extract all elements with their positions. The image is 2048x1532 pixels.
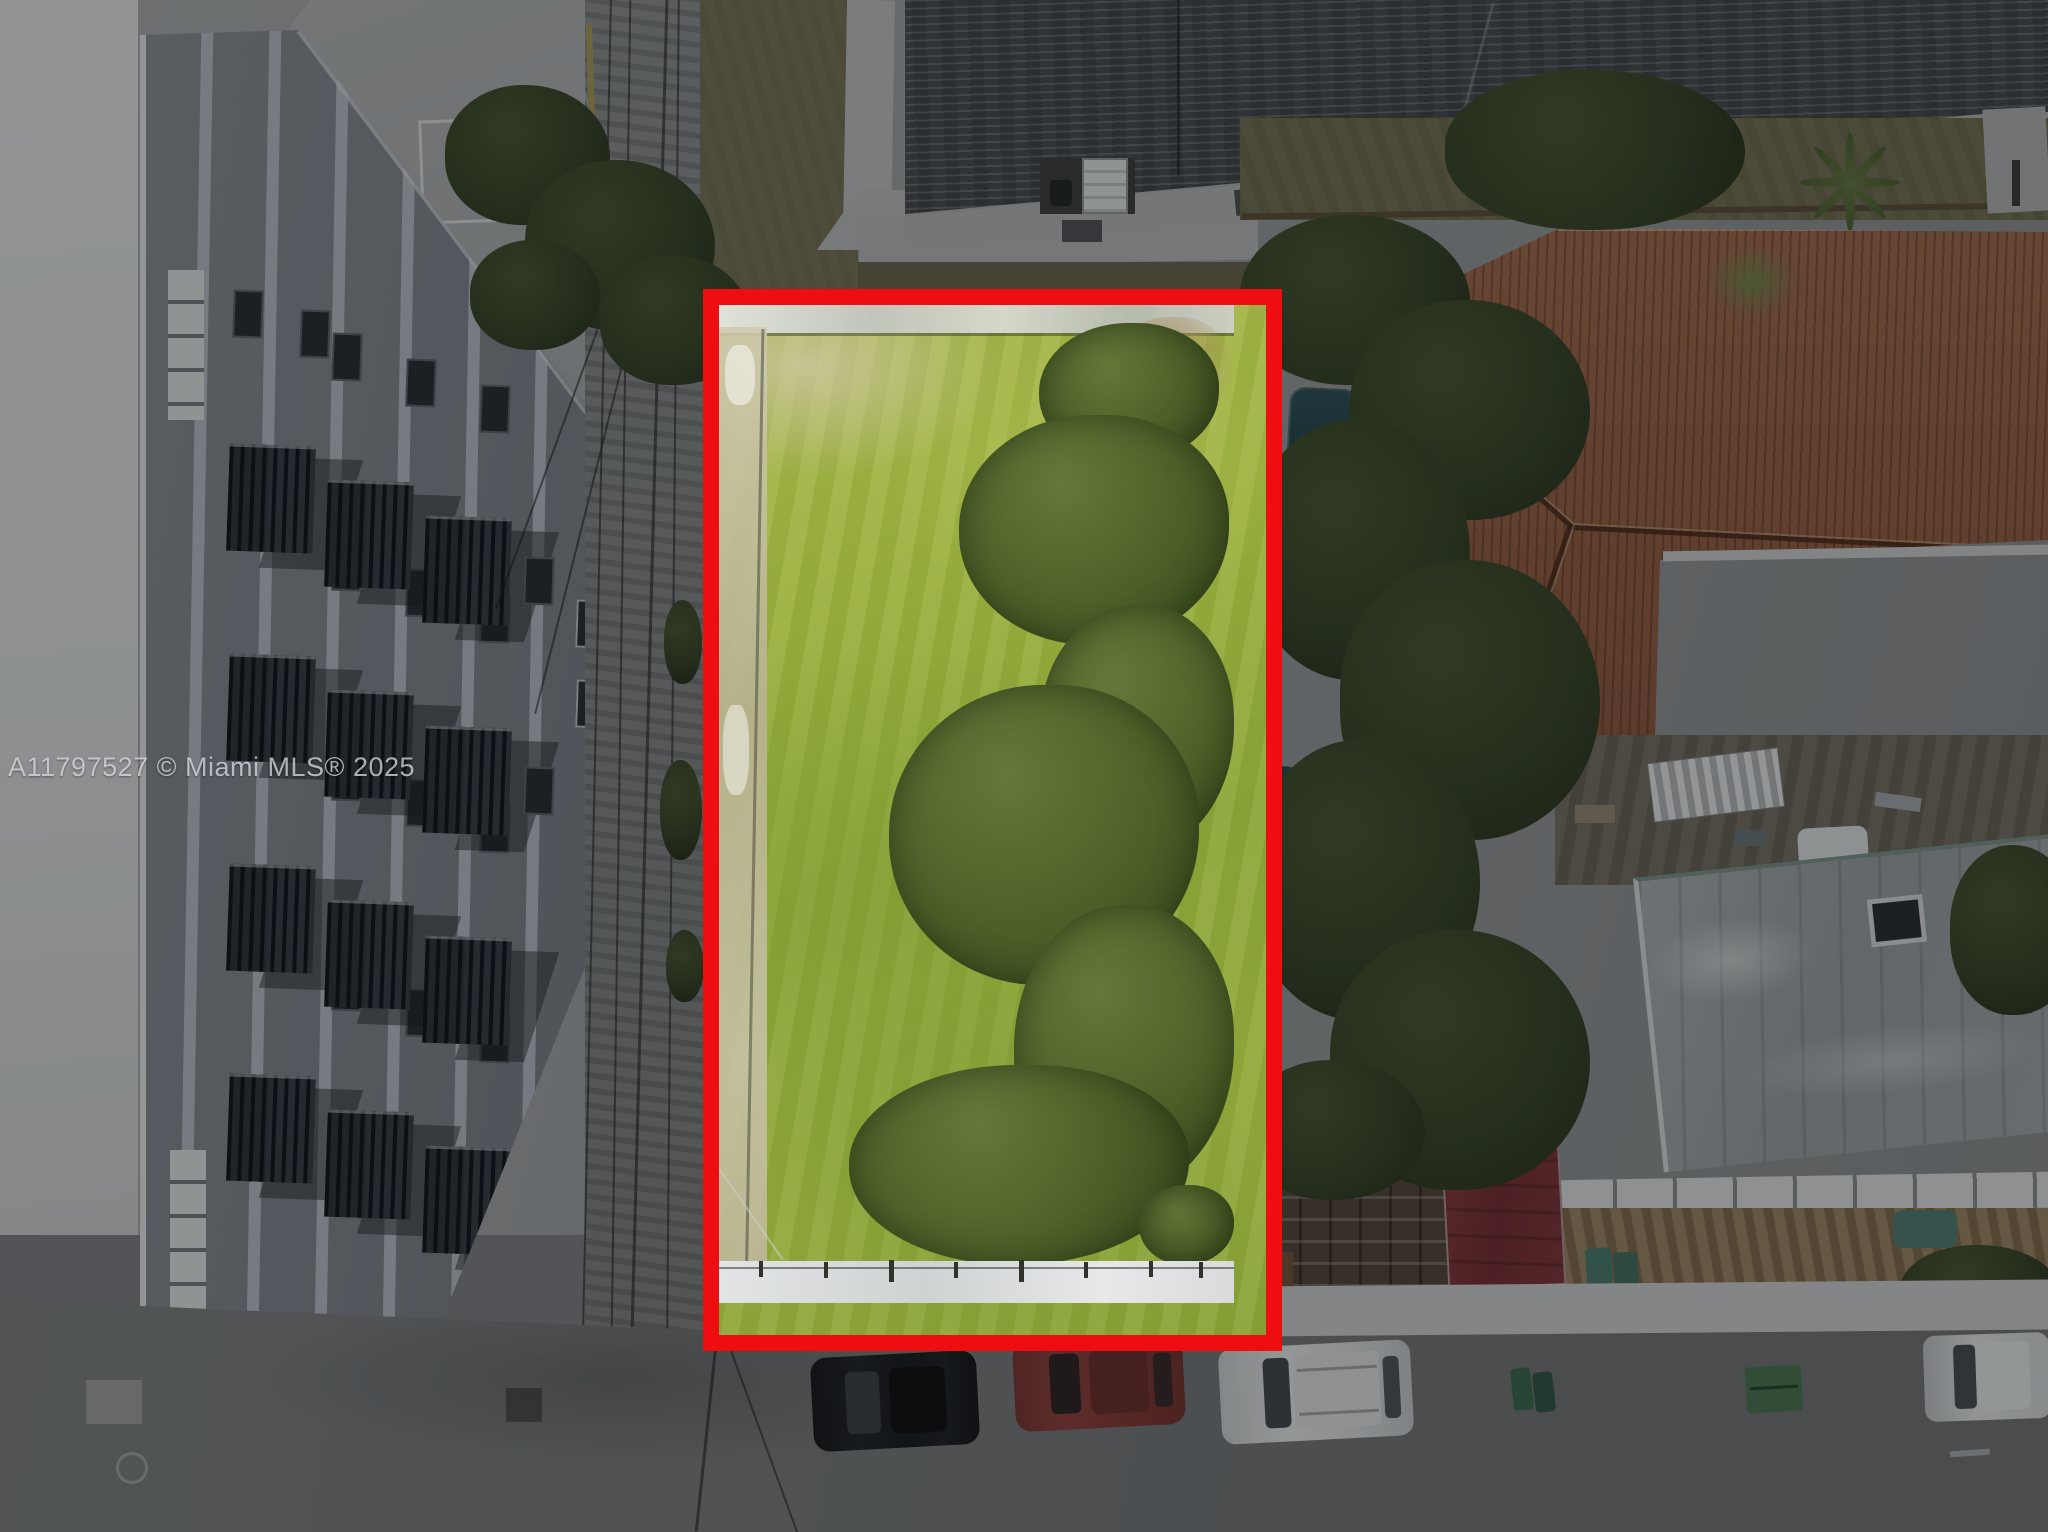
window xyxy=(299,309,331,358)
car-roof xyxy=(1088,1347,1149,1414)
car-roof xyxy=(888,1365,947,1434)
window xyxy=(523,766,555,815)
car-rear-glass xyxy=(1153,1352,1174,1407)
porch-sign xyxy=(1082,158,1128,214)
green-bin xyxy=(1613,1251,1639,1287)
debris xyxy=(1575,805,1615,823)
car-windshield xyxy=(844,1371,881,1435)
tree-canopy xyxy=(470,240,600,350)
balcony xyxy=(422,516,512,626)
vacant-lot-boundary xyxy=(703,289,1282,1351)
window xyxy=(331,332,363,381)
left-light-strip xyxy=(0,0,138,1250)
green-bin xyxy=(1585,1247,1613,1285)
green-dumpster xyxy=(1745,1365,1803,1414)
sidewalk-front xyxy=(1250,1280,2048,1337)
dirt-white-patch xyxy=(723,705,749,795)
window xyxy=(232,289,264,338)
white-trim xyxy=(170,1150,206,1310)
palm-over-roof xyxy=(1688,232,1818,332)
debris xyxy=(1735,830,1765,846)
black-car xyxy=(810,1350,981,1453)
street-patch-light xyxy=(86,1380,142,1424)
white-suv xyxy=(1218,1339,1415,1445)
fence-wire-line xyxy=(719,1267,1234,1269)
porch-chair xyxy=(1050,180,1072,206)
lot-tree xyxy=(959,415,1229,645)
fence-post xyxy=(954,1262,958,1278)
dirt-white-patch xyxy=(725,345,755,405)
bush xyxy=(660,760,702,860)
roof-seam xyxy=(1177,0,1180,175)
bush xyxy=(666,930,704,1002)
dumpster-lid-line xyxy=(1750,1385,1798,1391)
suv-roof xyxy=(1292,1351,1382,1429)
fence-post xyxy=(824,1262,828,1278)
lot-tree xyxy=(1139,1185,1234,1265)
white-trim xyxy=(168,270,204,420)
balcony xyxy=(324,1110,414,1220)
facade-stripe xyxy=(179,25,214,1335)
balcony xyxy=(226,444,316,554)
balcony xyxy=(324,900,414,1010)
fence-post xyxy=(759,1261,763,1277)
debris xyxy=(1874,792,1922,812)
scrub-strip xyxy=(858,262,1258,292)
window xyxy=(405,358,437,407)
white-suv-right xyxy=(1923,1332,2048,1422)
suv-rear-glass xyxy=(1382,1356,1401,1419)
manhole xyxy=(116,1452,148,1484)
tree-canopy xyxy=(1445,70,1745,230)
car-windshield xyxy=(1048,1353,1081,1414)
green-bin xyxy=(1510,1367,1534,1411)
balcony xyxy=(324,480,414,590)
balcony xyxy=(226,654,316,764)
aerial-photo-scene: A11797527 © Miami MLS® 2025 xyxy=(0,0,2048,1532)
fence-post xyxy=(889,1260,894,1282)
suv-windshield xyxy=(1953,1344,1977,1409)
lot-tree xyxy=(849,1065,1189,1265)
watermark: A11797527 © Miami MLS® 2025 xyxy=(8,752,415,783)
window xyxy=(523,556,555,605)
doormat xyxy=(1062,220,1102,242)
fence-post xyxy=(1149,1261,1153,1277)
balcony xyxy=(422,726,512,836)
dark-post xyxy=(2012,160,2020,206)
fence-post xyxy=(1019,1260,1024,1282)
green-bin xyxy=(1532,1371,1556,1413)
street-patch xyxy=(506,1388,542,1422)
window xyxy=(479,384,511,433)
bush xyxy=(664,600,702,684)
roof-vent xyxy=(1867,894,1928,948)
palm-tree xyxy=(1790,128,1910,238)
suv-windshield xyxy=(1262,1357,1292,1428)
balcony xyxy=(422,936,512,1046)
suv-roof xyxy=(1977,1341,2031,1411)
corrugated-metal-roof xyxy=(1647,747,1785,823)
balcony xyxy=(226,1074,316,1184)
fence-post xyxy=(1084,1262,1088,1278)
water-tank xyxy=(1893,1210,1957,1248)
balcony xyxy=(226,864,316,974)
fence-post xyxy=(1199,1262,1203,1278)
